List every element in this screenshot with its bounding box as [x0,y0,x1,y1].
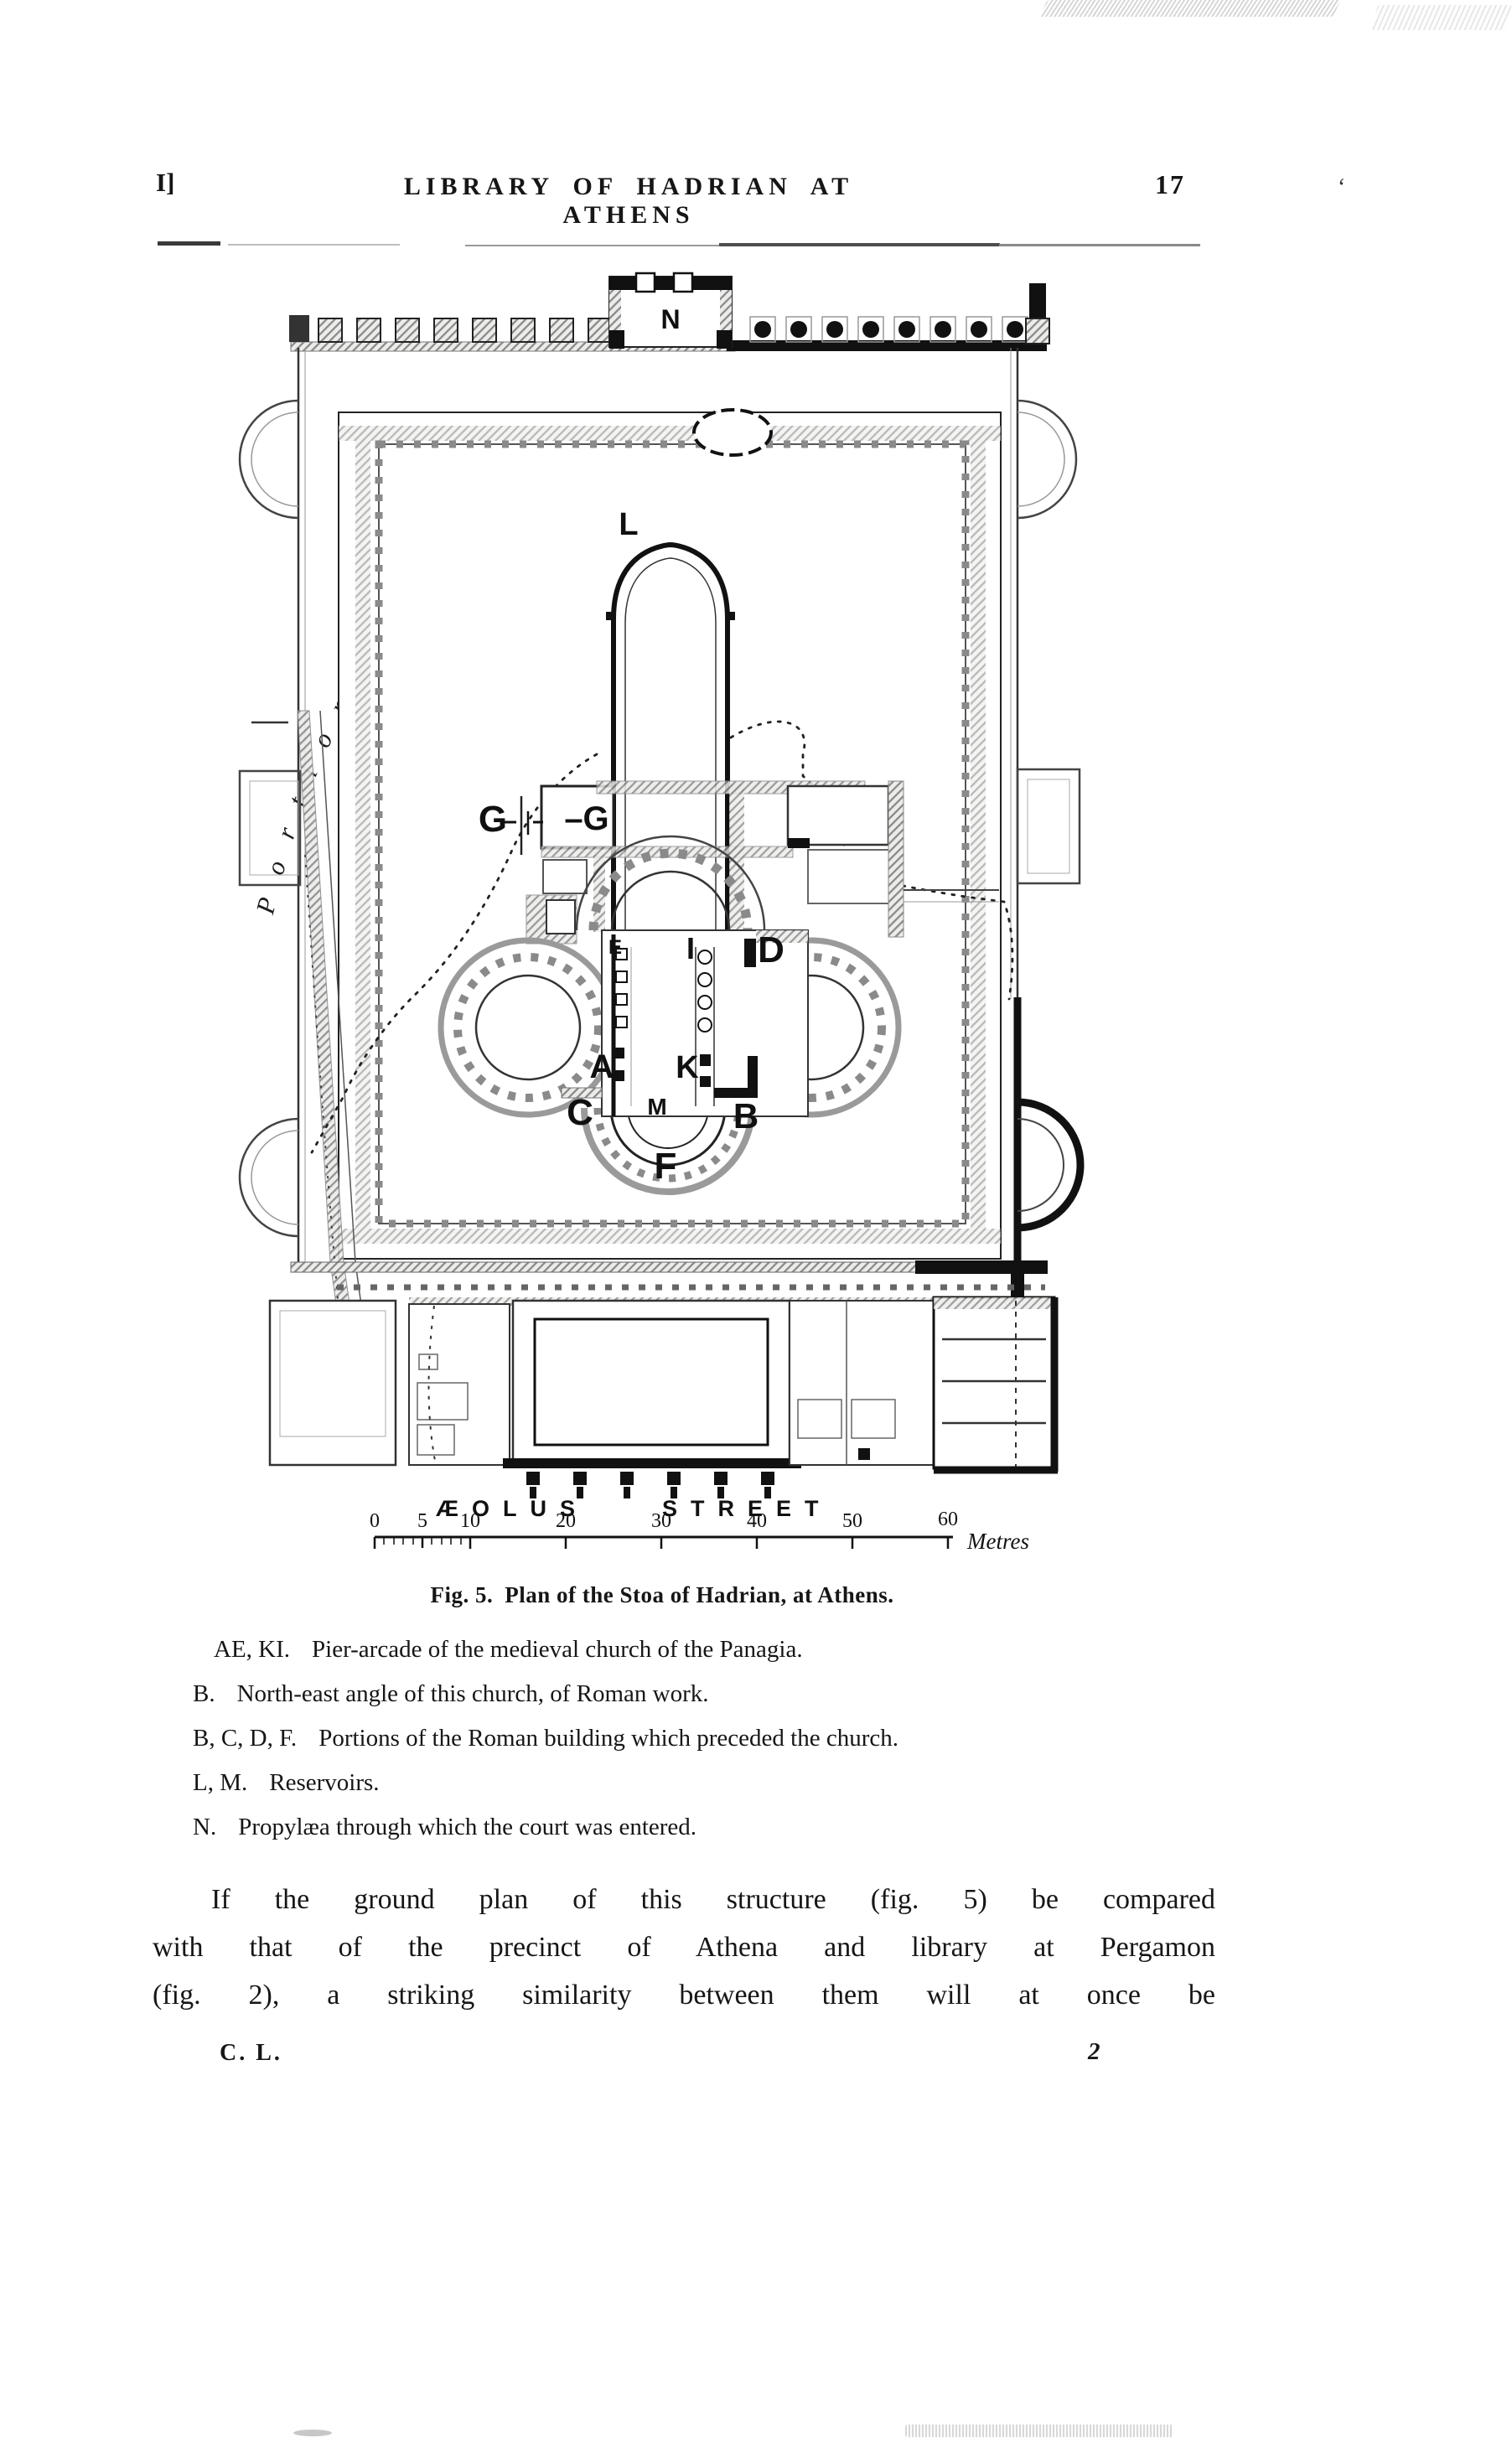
legend-item: B, C, D, F.Portions of the Roman buildin… [193,1716,1240,1761]
legend-text: Propylæa through which the court was ent… [238,1814,696,1840]
label-g-outer: G [479,799,507,840]
page-number: 17 [1155,169,1185,200]
paragraph-line: (fig. 2), a striking similarity between … [153,1971,1215,2019]
svg-text:20: 20 [556,1510,576,1532]
figure-number: Fig. 5. [430,1582,493,1607]
header-rule-segment [719,243,1000,246]
legend-text: Portions of the Roman building which pre… [318,1725,898,1752]
east-exedrae [1017,401,1080,1228]
far-east-block [934,1297,1058,1472]
figure-caption-text: Plan of the Stoa of Hadrian, at Athens. [505,1582,893,1607]
paragraph-line: with that of the precinct of Athena and … [153,1923,1215,1971]
signature-mark: I] [156,168,174,198]
figure-caption: Fig. 5.Plan of the Stoa of Hadrian, at A… [201,1582,1123,1608]
court-entrance-bastion [694,410,771,455]
scan-artifact [1371,5,1512,30]
legend-key: B. [193,1680,215,1707]
label-reservoir-l: L [619,507,638,542]
legend-key: AE, KI. [214,1636,290,1663]
south-range [270,1297,1058,1498]
stray-ink-mark: ‘ [1338,174,1345,201]
svg-text:50: 50 [842,1510,862,1532]
legend-item: AE, KI.Pier-arcade of the medieval churc… [193,1628,1240,1672]
figure-plan: Portion Unexcavated [127,268,1385,1576]
legend-key: N. [193,1814,216,1840]
legend-text: Pier-arcade of the medieval church of th… [312,1636,803,1663]
wall-d [744,939,756,967]
footer-sheet-number: 2 [1088,2038,1100,2066]
header-rule-segment [228,244,400,246]
header-rule-segment [999,244,1200,246]
svg-text:0: 0 [370,1510,380,1532]
svg-text:60: 60 [938,1509,958,1530]
scale-unit: Metres [966,1529,1029,1554]
label-k: K [676,1050,699,1085]
figure-legend: AE, KI.Pier-arcade of the medieval churc… [193,1628,1240,1850]
svg-text:40: 40 [747,1510,767,1532]
legend-text: Reservoirs. [269,1769,379,1796]
label-b: B [733,1096,759,1136]
label-e: E [608,936,622,959]
label-g-inner: –G [564,800,608,837]
legend-item: B.North-east angle of this church, of Ro… [193,1672,1240,1716]
central-hall [503,1301,801,1498]
label-a: A [590,1048,614,1085]
label-d: D [758,929,784,970]
svg-text:30: 30 [651,1510,671,1532]
scan-artifact [1039,0,1340,17]
porch-columns [526,1472,774,1498]
label-propylaea: N [660,304,680,334]
label-m: M [647,1094,666,1120]
legend-text: North-east angle of this church, of Roma… [237,1680,709,1707]
label-f: F [655,1146,677,1187]
porch-stylobate [503,1458,801,1468]
scan-artifact [905,2425,1173,2437]
running-title: LIBRARY OF HADRIAN AT ATHENS [335,173,922,230]
street-label: ÆOLUS STREET [436,1496,832,1521]
east-range-rooms [790,1301,934,1465]
footer-signature: C. L. [220,2040,282,2067]
body-paragraph: If the ground plan of this structure (fi… [153,1876,1215,2019]
label-c: C [567,1092,593,1133]
label-i: I [686,931,695,965]
svg-text:5: 5 [417,1510,427,1532]
header-rule-segment [158,241,220,246]
paragraph-line: If the ground plan of this structure (fi… [153,1876,1215,1923]
legend-item: L, M.Reservoirs. [193,1761,1240,1805]
svg-text:10: 10 [460,1510,480,1532]
legend-key: L, M. [193,1769,247,1796]
book-page: { "colors": {"ink": "#161616", "paper": … [0,0,1512,2443]
legend-item: N.Propylæa through which the court was e… [193,1805,1240,1850]
propylaea: N [609,273,732,349]
legend-key: B, C, D, F. [193,1725,297,1752]
scan-artifact [293,2430,332,2436]
